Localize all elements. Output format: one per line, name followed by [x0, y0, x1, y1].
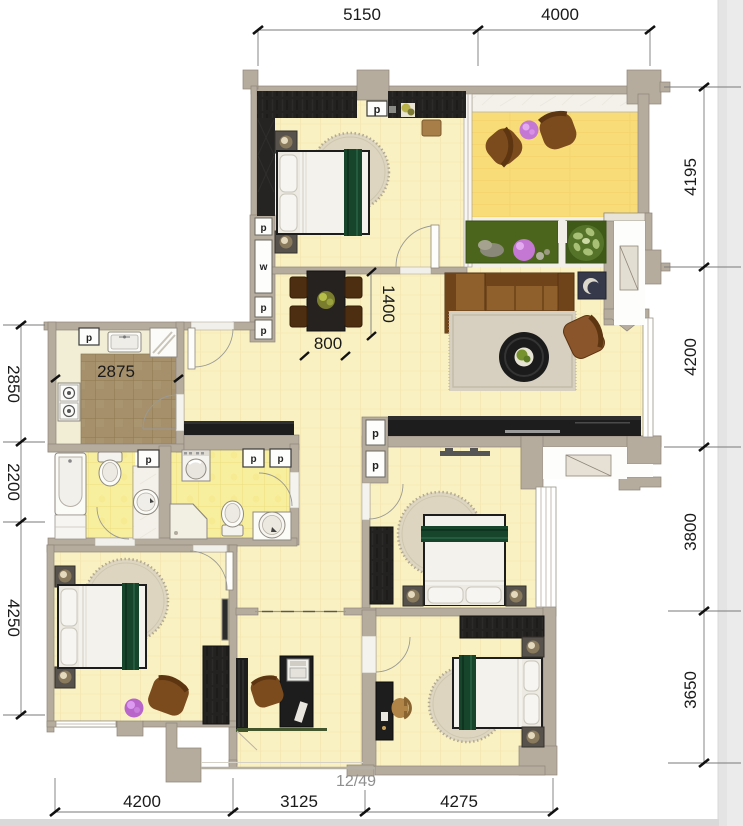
svg-text:2850: 2850 — [4, 365, 23, 403]
svg-text:4000: 4000 — [541, 5, 579, 24]
svg-text:5150: 5150 — [343, 5, 381, 24]
svg-text:4250: 4250 — [4, 599, 23, 637]
svg-text:1400: 1400 — [379, 285, 398, 323]
svg-text:12/49: 12/49 — [336, 773, 376, 790]
svg-text:p: p — [145, 455, 151, 466]
svg-text:3125: 3125 — [280, 792, 318, 811]
svg-text:p: p — [374, 104, 381, 116]
svg-text:2200: 2200 — [4, 463, 23, 501]
svg-text:3800: 3800 — [681, 513, 700, 551]
svg-text:p: p — [372, 428, 379, 440]
svg-text:4200: 4200 — [681, 338, 700, 376]
svg-text:p: p — [260, 303, 266, 314]
svg-text:4275: 4275 — [440, 792, 478, 811]
svg-text:4195: 4195 — [681, 158, 700, 196]
svg-text:p: p — [250, 454, 256, 465]
svg-text:p: p — [260, 223, 266, 234]
svg-text:3650: 3650 — [681, 671, 700, 709]
svg-text:2875: 2875 — [97, 362, 135, 381]
svg-text:p: p — [372, 460, 379, 472]
svg-text:p: p — [260, 326, 266, 337]
svg-text:800: 800 — [314, 334, 342, 353]
svg-text:4200: 4200 — [123, 792, 161, 811]
svg-text:p: p — [277, 454, 283, 465]
svg-text:w: w — [259, 262, 268, 273]
svg-text:p: p — [86, 333, 92, 344]
